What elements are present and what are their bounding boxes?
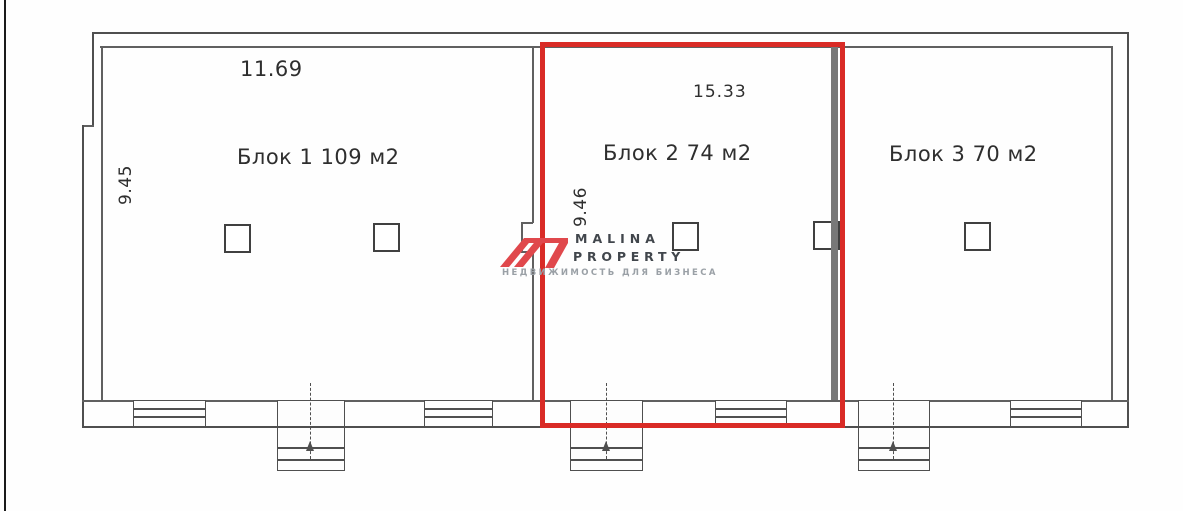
window-glazing-line (134, 416, 205, 418)
window-glazing-line (134, 408, 205, 410)
image-left-border (4, 0, 6, 511)
floorplan-image: 11.69 Блок 1 109 м2 9.45 15.33 Блок 2 74… (0, 0, 1183, 511)
stair-step-line (278, 459, 344, 461)
column-marker (224, 224, 251, 253)
brand-name-line1: MALINA (575, 231, 660, 246)
brand-tagline: НЕДВИЖИМОСТЬ ДЛЯ БИЗНЕСА (502, 268, 718, 278)
entrance-stairs-block1 (277, 400, 345, 471)
wall-left-outer-upper (92, 32, 94, 126)
partition-1-2-niche-top (521, 222, 533, 224)
wall-right-outer (1127, 32, 1129, 428)
stair-step-line (571, 459, 642, 461)
watermark: MALINA PROPERTY НЕДВИЖИМОСТЬ ДЛЯ БИЗНЕСА (497, 226, 707, 290)
malina-logo-icon (497, 226, 571, 270)
entry-direction-arrow-icon (306, 441, 314, 451)
block1-side-dimension: 9.45 (116, 160, 136, 210)
stair-step-line (859, 459, 929, 461)
partition-1-2-upper (532, 47, 534, 223)
window-symbol (1010, 400, 1082, 427)
stair-step-line (278, 426, 344, 428)
block1-label: Блок 1 109 м2 (237, 145, 400, 169)
brand-name-line2: PROPERTY (573, 249, 685, 264)
entrance-stairs-block3 (858, 400, 930, 471)
entry-direction-arrow-icon (602, 441, 610, 451)
block3-label: Блок 3 70 м2 (889, 142, 1038, 166)
window-glazing-line (1011, 408, 1081, 410)
window-glazing-line (425, 416, 492, 418)
window-glazing-line (1011, 416, 1081, 418)
block1-top-dimension: 11.69 (240, 57, 303, 81)
wall-left-outer-lower (82, 125, 84, 428)
window-glazing-line (425, 408, 492, 410)
wall-right-inner (1111, 47, 1113, 401)
wall-left-inner (101, 47, 103, 401)
entry-direction-arrow-icon (889, 441, 897, 451)
window-symbol (133, 400, 206, 427)
column-marker (964, 222, 991, 251)
stair-step-line (859, 426, 929, 428)
window-symbol (424, 400, 493, 427)
wall-top-outer (92, 32, 1129, 34)
column-marker (373, 223, 400, 252)
